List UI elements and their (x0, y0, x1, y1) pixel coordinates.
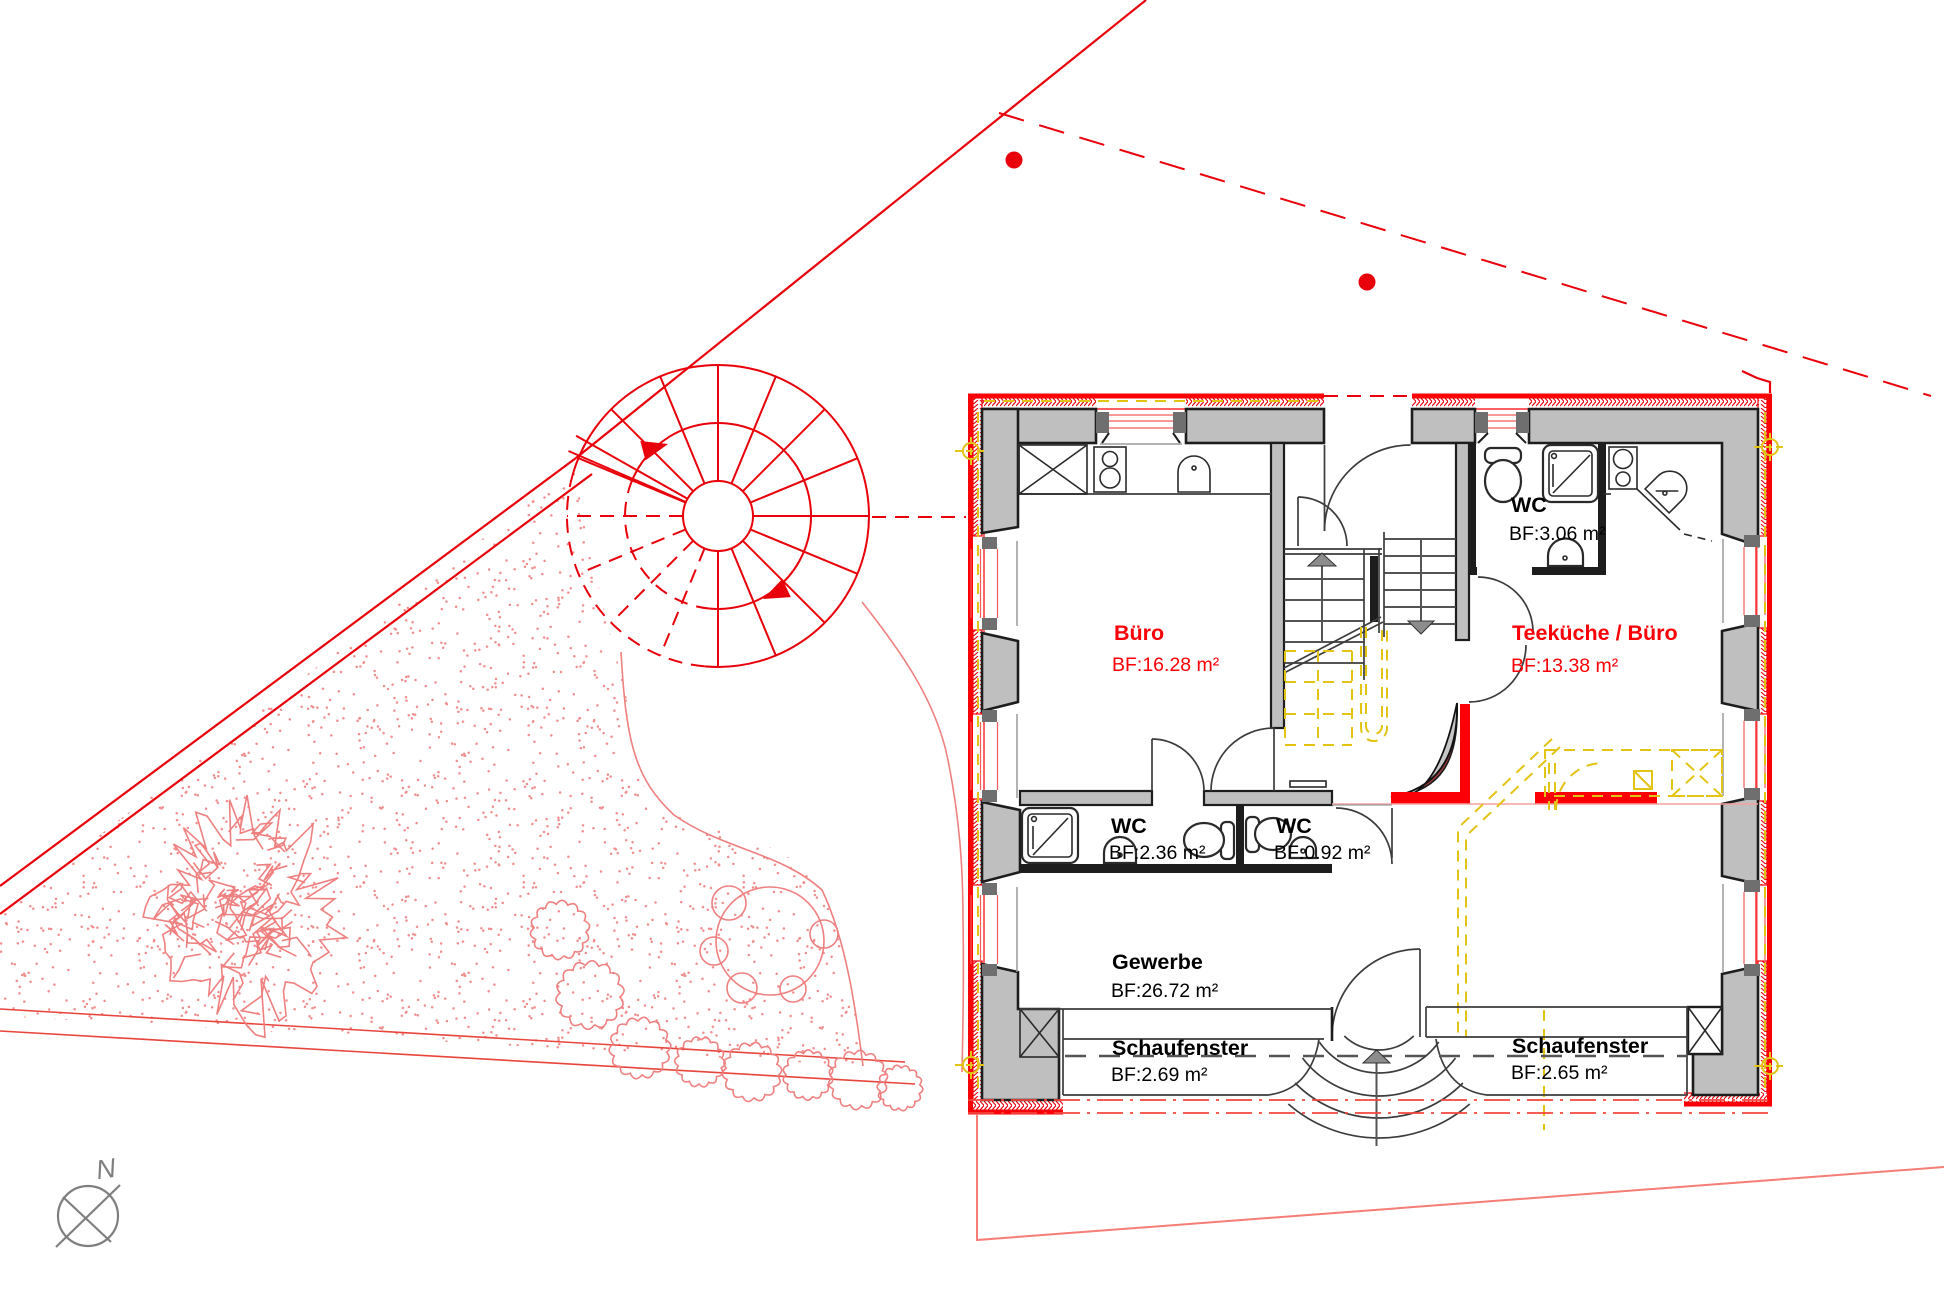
svg-text:BF:26.72 m²: BF:26.72 m² (1111, 980, 1219, 1002)
svg-text:Büro: Büro (1114, 621, 1164, 645)
svg-text:WC: WC (1276, 814, 1312, 838)
svg-text:BF:13.38 m²: BF:13.38 m² (1511, 655, 1619, 677)
svg-text:Schaufenster: Schaufenster (1512, 1034, 1649, 1058)
svg-text:BF:2.69 m²: BF:2.69 m² (1111, 1064, 1208, 1086)
svg-text:WC: WC (1111, 814, 1147, 838)
svg-text:BF:16.28 m²: BF:16.28 m² (1112, 654, 1220, 676)
svg-text:BF:2.65 m²: BF:2.65 m² (1511, 1062, 1608, 1084)
svg-text:Teeküche / Büro: Teeküche / Büro (1512, 621, 1678, 645)
svg-text:BF:2.36 m²: BF:2.36 m² (1109, 842, 1206, 864)
svg-text:Schaufenster: Schaufenster (1112, 1036, 1249, 1060)
svg-text:BF:0.92 m²: BF:0.92 m² (1274, 842, 1371, 864)
svg-text:Gewerbe: Gewerbe (1112, 950, 1203, 974)
svg-text:N: N (94, 1153, 118, 1185)
svg-text:WC: WC (1511, 493, 1547, 517)
svg-text:BF:3.06 m²: BF:3.06 m² (1509, 523, 1606, 545)
